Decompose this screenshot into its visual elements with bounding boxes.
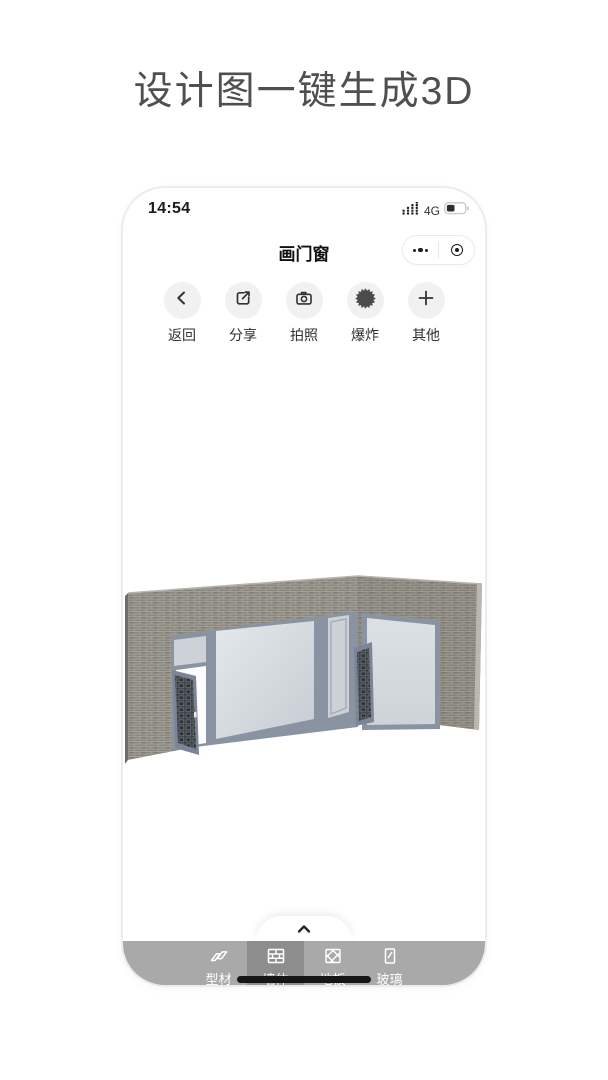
status-icons: 4G [402, 202, 469, 220]
explode-starburst-icon [355, 288, 376, 314]
camera-icon [294, 288, 314, 313]
more-button[interactable] [403, 236, 438, 264]
battery-icon [444, 202, 469, 220]
other-button[interactable]: 其他 [406, 282, 446, 345]
tab-profile-label: 型材 [205, 972, 231, 987]
plus-icon [416, 288, 436, 313]
share-button[interactable]: 分享 [223, 282, 263, 345]
phone-mockup: 14:54 4G 画门窗 [121, 186, 487, 987]
page-title: 设计图一键生成3D [0, 60, 608, 116]
photo-label: 拍照 [290, 325, 318, 345]
explode-button[interactable]: 爆炸 [345, 282, 385, 345]
back-label: 返回 [168, 325, 196, 345]
tab-glass-label: 玻璃 [376, 972, 402, 987]
share-box-arrow-icon [233, 288, 253, 313]
glass-pane-icon [379, 945, 401, 972]
share-label: 分享 [229, 325, 257, 345]
miniapp-capsule [402, 235, 475, 265]
profile-extrusion-icon [208, 945, 230, 972]
back-chevron-icon [172, 288, 192, 313]
home-indicator[interactable] [237, 976, 371, 983]
explode-label: 爆炸 [351, 325, 379, 345]
chevron-up-icon [294, 922, 314, 941]
model-3d-view[interactable] [122, 539, 487, 839]
brick-wall-icon [265, 945, 287, 972]
target-circle-icon [451, 244, 463, 256]
photo-button[interactable]: 拍照 [284, 282, 324, 345]
network-label: 4G [424, 204, 440, 218]
other-label: 其他 [412, 325, 440, 345]
toolbar: 返回 分享 拍照 [123, 282, 485, 345]
close-home-button[interactable] [439, 236, 474, 264]
back-button[interactable]: 返回 [162, 282, 202, 345]
sheet-pull-handle[interactable] [256, 916, 352, 941]
ellipsis-icon [413, 248, 429, 253]
status-time: 14:54 [148, 200, 190, 218]
signal-icon [402, 202, 420, 220]
floor-hatch-icon [322, 945, 344, 972]
